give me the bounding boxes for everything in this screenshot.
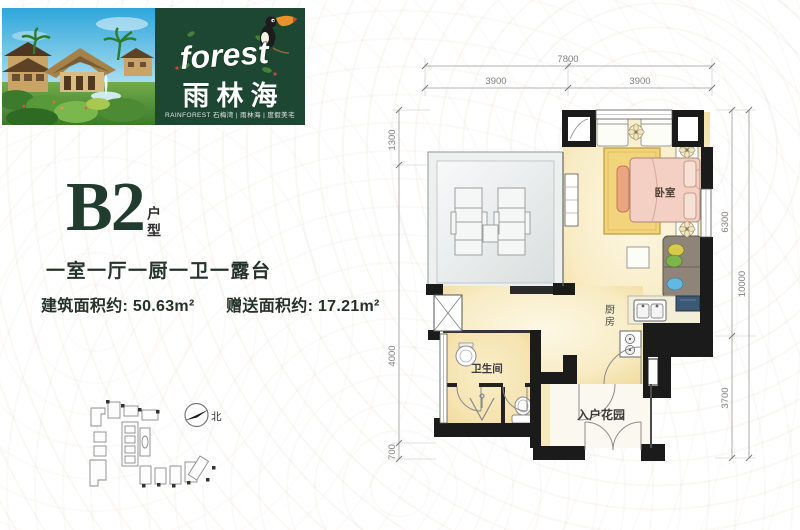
wall-notch (648, 359, 658, 385)
dim-top-total: 7800 (557, 54, 578, 65)
column-core (678, 117, 698, 141)
pillow (684, 193, 696, 219)
dim-left-top: 1300 (387, 129, 398, 150)
bedroom-label: 卧室 (655, 186, 676, 199)
sofa (663, 236, 702, 298)
north-arrow-icon: 北 (185, 404, 222, 427)
dim-top-right: 3900 (629, 76, 650, 87)
shaft (434, 295, 462, 331)
sofa-pillow (666, 255, 682, 267)
dim-right-lower: 3700 (720, 387, 731, 408)
kitchen-sink (634, 300, 666, 321)
pillow (684, 161, 696, 187)
north-label: 北 (211, 411, 222, 423)
bench (617, 166, 629, 212)
entry-garden-label: 入户花园 (577, 407, 625, 422)
entry-garden-edge (541, 384, 550, 448)
floorplan-canvas: 卧室 厨 房 卫生间 入户花园 7800 3900 3900 (0, 0, 800, 530)
sofa-pillow (668, 244, 684, 256)
dim-left-mid: 4000 (387, 345, 398, 366)
dim-right-total: 10000 (737, 271, 748, 297)
kitchen-label-1: 厨 (605, 304, 615, 316)
kitchen-label-2: 房 (605, 315, 615, 328)
dim-left-bottom: 700 (387, 444, 398, 460)
dim-right-upper: 6300 (720, 211, 731, 232)
bathroom-label: 卫生间 (471, 362, 503, 375)
appliance (676, 296, 700, 311)
coffee-table (627, 247, 649, 268)
stove (620, 331, 641, 357)
dim-top-left: 3900 (485, 76, 506, 87)
side-table (483, 225, 498, 242)
sofa-pillow (667, 278, 683, 290)
column-core (568, 117, 590, 141)
